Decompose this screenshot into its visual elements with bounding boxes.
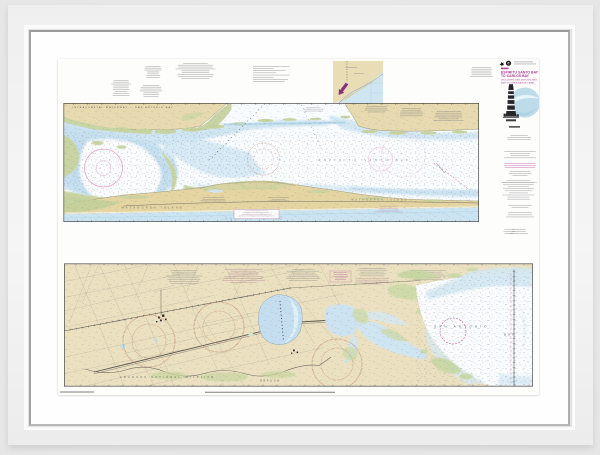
svg-text:AND VICTORIA BARGE CANAL: AND VICTORIA BARGE CANAL	[501, 81, 536, 84]
svg-text:INCLUDING SAN ANTONIO BAY: INCLUDING SAN ANTONIO BAY	[501, 78, 538, 81]
svg-text:TO CARLOS BAY: TO CARLOS BAY	[501, 74, 530, 78]
